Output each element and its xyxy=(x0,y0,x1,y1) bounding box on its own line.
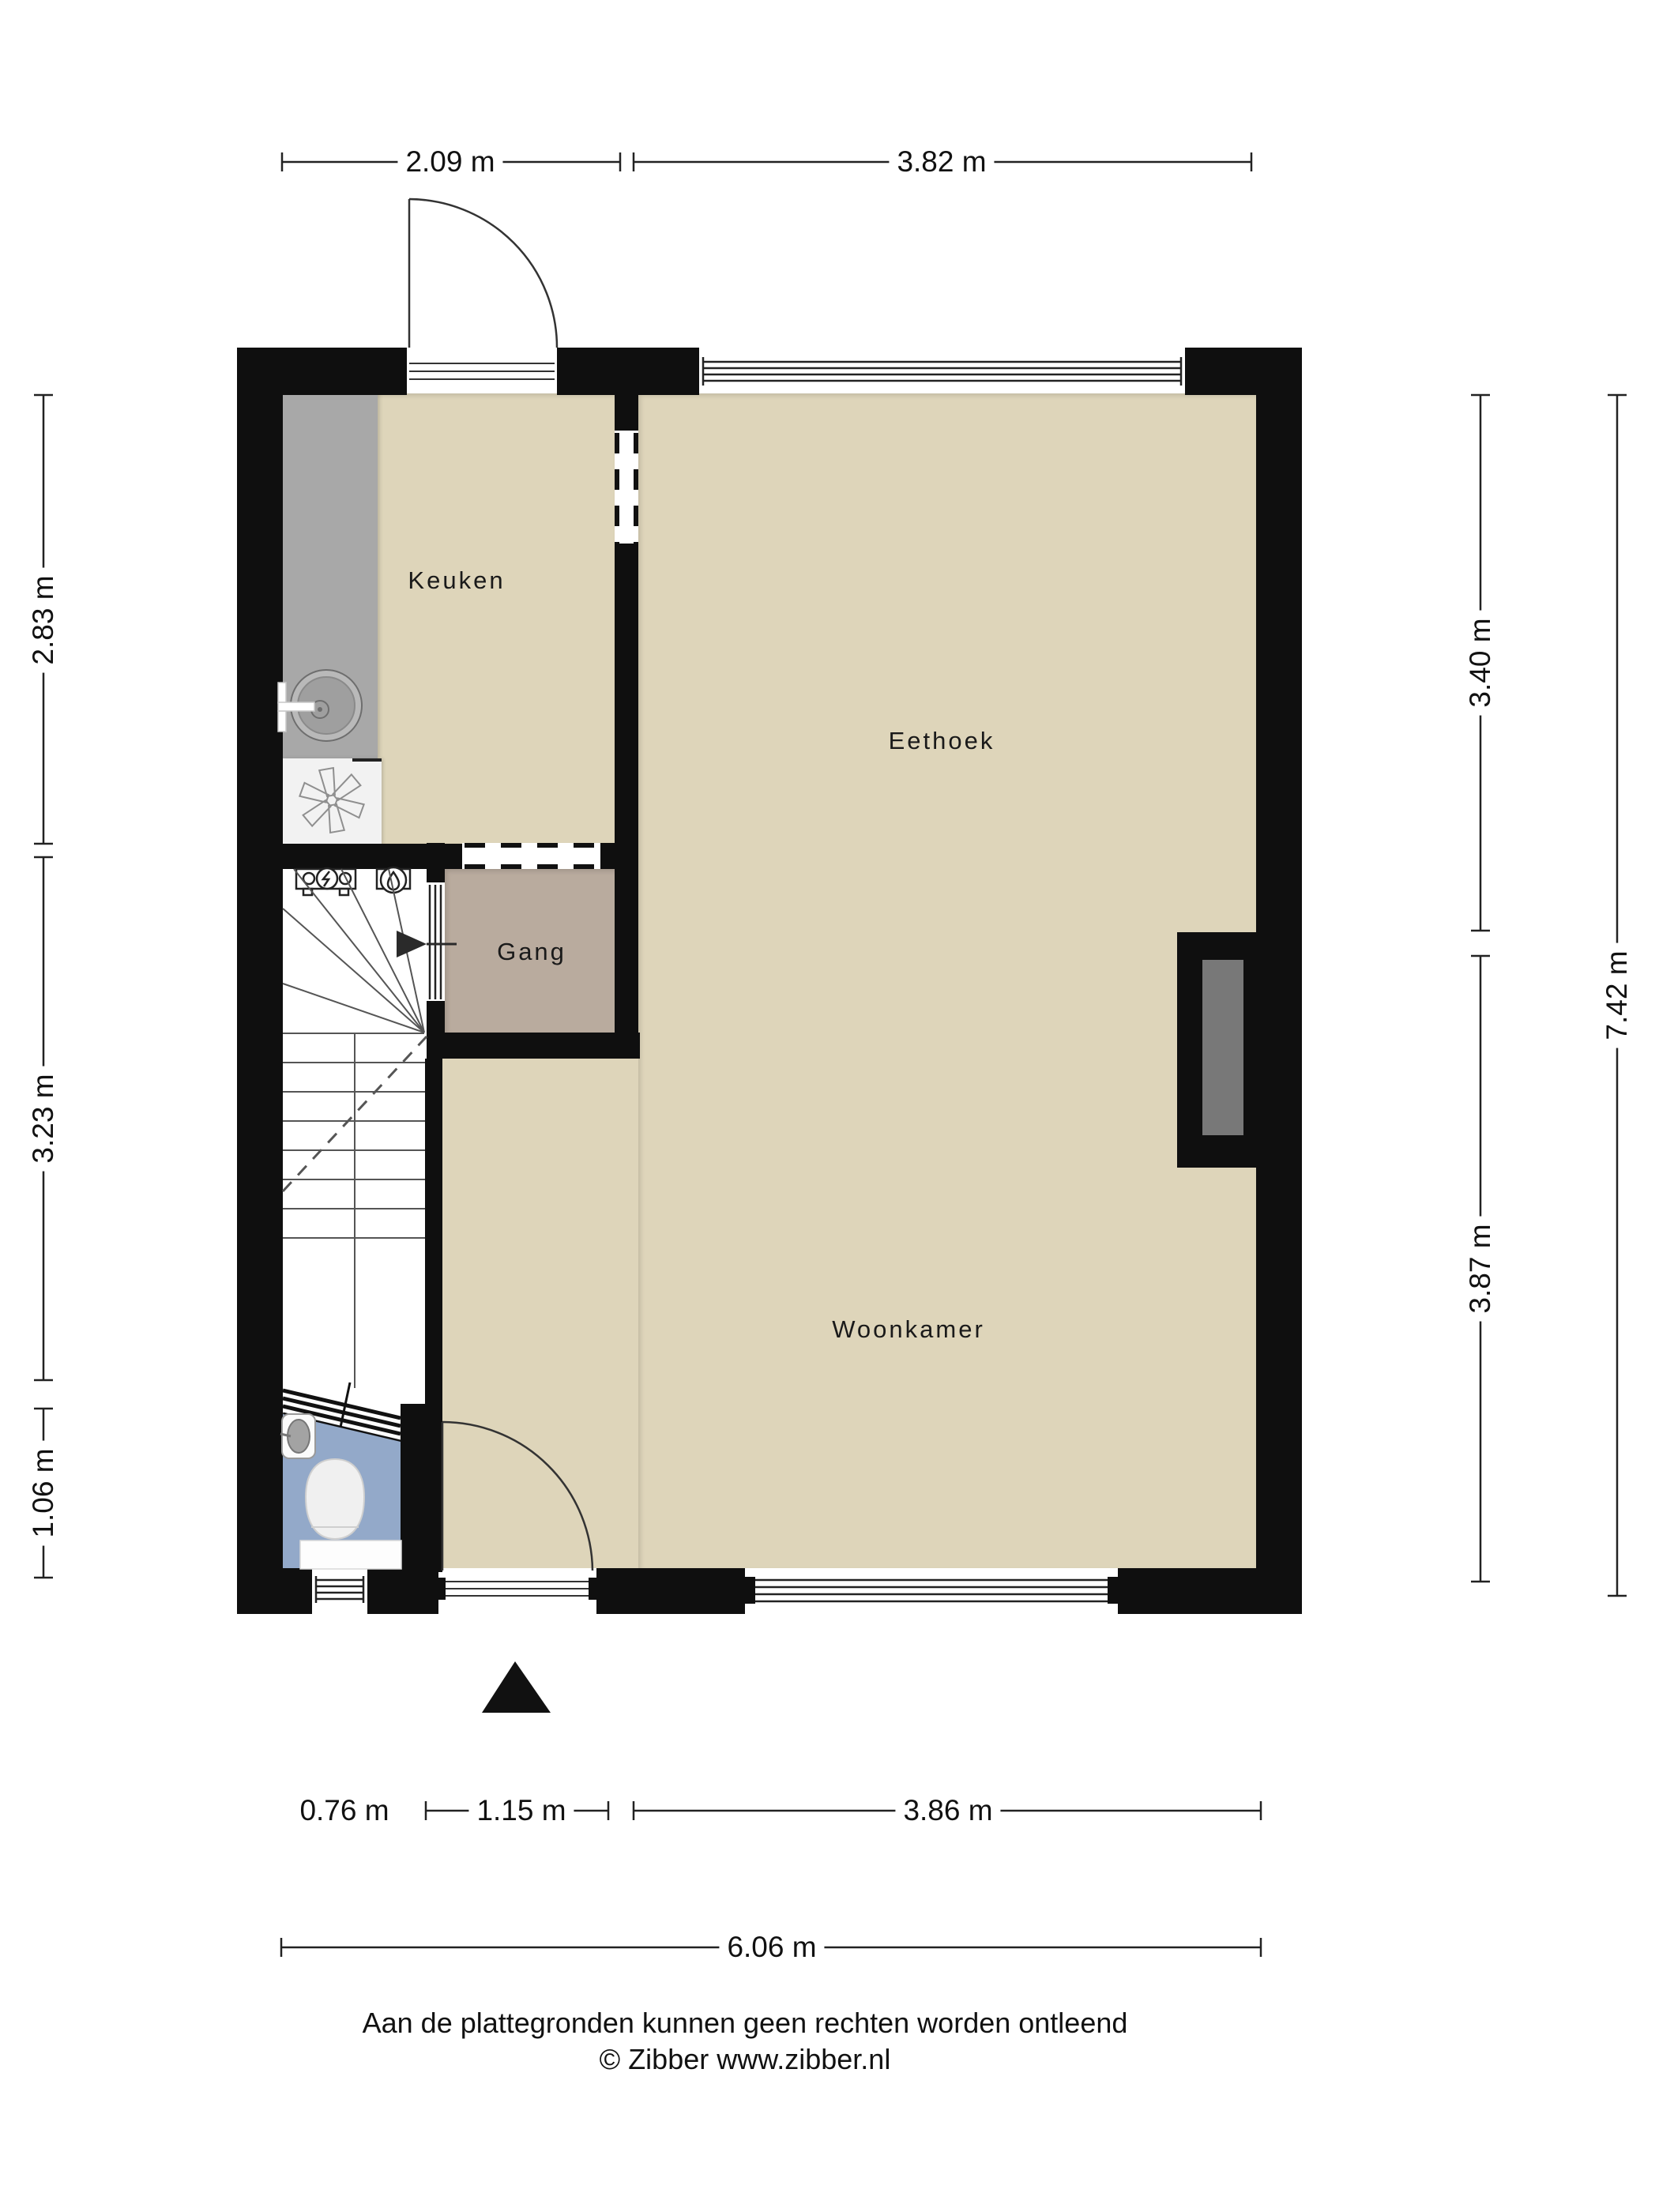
room-label-woonkamer: Woonkamer xyxy=(832,1315,985,1344)
room-label-gang: Gang xyxy=(497,938,566,966)
living-room-door xyxy=(437,1422,597,1600)
electric-meter xyxy=(296,868,355,895)
footer-credit: © Zibber www.zibber.nl xyxy=(600,2043,891,2076)
dim-left-1: 2.83 m xyxy=(27,567,60,672)
top-window xyxy=(703,357,1181,386)
entrance-door xyxy=(409,199,557,379)
north-arrow xyxy=(482,1661,551,1713)
dim-bottom-total: 6.06 m xyxy=(719,1931,824,1964)
dim-right-inner-1: 3.40 m xyxy=(1464,610,1497,715)
bottom-window-small xyxy=(316,1576,363,1603)
stair-direction-arrow xyxy=(397,931,457,957)
dim-top-1: 2.09 m xyxy=(397,145,502,179)
dim-left-3: 1.06 m xyxy=(27,1440,60,1545)
dim-top-2: 3.82 m xyxy=(889,145,994,179)
dim-bottom-1: 0.76 m xyxy=(292,1794,397,1827)
toilet-cistern xyxy=(300,1540,401,1569)
plan-linework xyxy=(0,0,1659,2212)
hall-door-opening xyxy=(430,885,441,999)
dim-right-outer-1: 7.42 m xyxy=(1601,942,1634,1048)
floorplan-page: Keuken Eethoek Gang Woonkamer 2.09 m 3.8… xyxy=(0,0,1659,2212)
dimension-lines xyxy=(34,152,1627,1957)
dim-bottom-2: 1.15 m xyxy=(468,1794,574,1827)
dim-bottom-3: 3.86 m xyxy=(895,1794,1000,1827)
toilet-bowl xyxy=(306,1459,364,1539)
dim-left-2: 3.23 m xyxy=(27,1066,60,1171)
pass-through-dashes xyxy=(465,433,636,867)
bottom-window-large xyxy=(745,1577,1118,1604)
footer-disclaimer: Aan de plattegronden kunnen geen rechten… xyxy=(363,2007,1128,2040)
toilet-sink xyxy=(280,1414,315,1458)
room-label-eethoek: Eethoek xyxy=(889,727,995,755)
room-label-keuken: Keuken xyxy=(408,566,505,595)
dim-right-inner-2: 3.87 m xyxy=(1464,1216,1497,1321)
boiler-asterisk xyxy=(299,768,363,833)
